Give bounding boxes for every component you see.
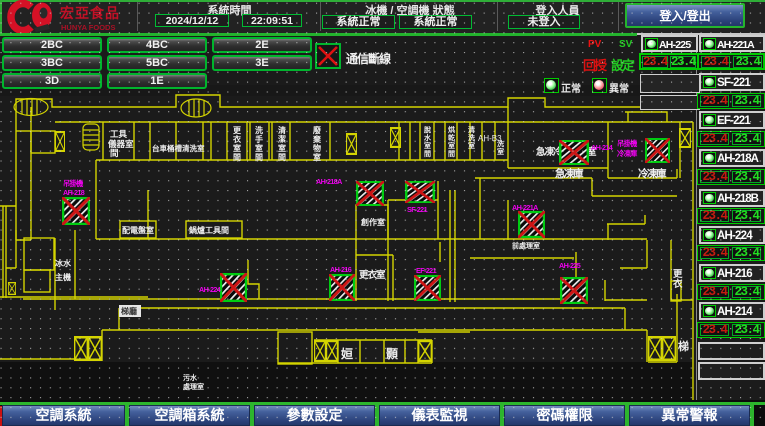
svg-text:間: 間 [110, 148, 119, 158]
svg-text:洗: 洗 [468, 133, 475, 142]
svg-text:室: 室 [448, 141, 455, 150]
svg-text:急凍庫: 急凍庫 [555, 167, 584, 180]
svg-text:室: 室 [255, 143, 263, 153]
svg-text:台車桶槽清洗室: 台車桶槽清洗室 [152, 143, 205, 153]
svg-text:室: 室 [497, 147, 504, 156]
svg-text:配電盤室: 配電盤室 [122, 225, 154, 235]
svg-text:間: 間 [448, 149, 455, 158]
svg-text:AH-B3: AH-B3 [478, 134, 502, 143]
svg-text:顥: 顥 [386, 347, 398, 361]
svg-text:冰水: 冰水 [55, 258, 72, 268]
svg-text:廢: 廢 [312, 125, 322, 135]
svg-text:冷凍庫: 冷凍庫 [617, 149, 638, 158]
svg-text:AH-224: AH-224 [199, 285, 221, 294]
svg-text:間: 間 [424, 149, 431, 158]
svg-text:工具: 工具 [110, 129, 128, 139]
svg-text:梯: 梯 [678, 339, 689, 353]
svg-text:潔: 潔 [278, 134, 286, 144]
svg-text:AH-218: AH-218 [63, 188, 85, 197]
svg-text:AH-214: AH-214 [591, 143, 613, 152]
svg-text:室: 室 [313, 152, 321, 162]
svg-text:更衣室: 更衣室 [359, 269, 386, 281]
svg-text:SF-221: SF-221 [407, 205, 428, 214]
svg-text:EF-221: EF-221 [416, 266, 437, 275]
svg-text:前處理室: 前處理室 [512, 241, 540, 250]
svg-text:間: 間 [278, 153, 286, 162]
svg-text:鍋爐工具間: 鍋爐工具間 [189, 225, 229, 235]
svg-text:宏亞食品: 宏亞食品 [60, 5, 120, 21]
svg-text:間: 間 [255, 153, 263, 162]
svg-text:室: 室 [233, 143, 241, 153]
svg-text:洗: 洗 [255, 125, 263, 135]
svg-text:清: 清 [278, 125, 286, 135]
svg-text:室: 室 [468, 141, 475, 150]
svg-text:AH-218A: AH-218A [316, 177, 342, 186]
svg-text:處理室: 處理室 [183, 382, 204, 391]
svg-text:清: 清 [468, 125, 475, 134]
svg-text:冷凍庫: 冷凍庫 [638, 167, 667, 180]
svg-text:污水: 污水 [183, 373, 198, 382]
svg-text:主機: 主機 [55, 272, 71, 282]
svg-text:AH-225: AH-225 [559, 261, 581, 270]
svg-text:間: 間 [233, 153, 241, 162]
svg-text:衣: 衣 [233, 134, 241, 144]
svg-text:吊掛機: 吊掛機 [617, 139, 638, 148]
svg-text:衣: 衣 [673, 278, 683, 290]
svg-text:物: 物 [313, 143, 321, 153]
svg-text:烘: 烘 [448, 125, 455, 134]
svg-text:AH-216: AH-216 [330, 265, 352, 274]
svg-text:更: 更 [233, 125, 242, 135]
svg-text:梯廳: 梯廳 [121, 306, 137, 316]
svg-text:姮: 姮 [341, 346, 353, 361]
svg-text:室: 室 [424, 141, 431, 150]
svg-text:室: 室 [278, 143, 286, 153]
svg-text:乾: 乾 [448, 133, 455, 142]
svg-text:HUNYA FOODS: HUNYA FOODS [61, 23, 115, 32]
svg-text:脫: 脫 [424, 125, 432, 134]
svg-text:棄: 棄 [312, 134, 322, 144]
svg-text:AH-221A: AH-221A [512, 203, 538, 212]
svg-text:吊掛機: 吊掛機 [63, 179, 84, 188]
svg-text:創作室: 創作室 [360, 217, 385, 227]
svg-text:手: 手 [255, 134, 263, 144]
svg-text:水: 水 [424, 133, 432, 142]
